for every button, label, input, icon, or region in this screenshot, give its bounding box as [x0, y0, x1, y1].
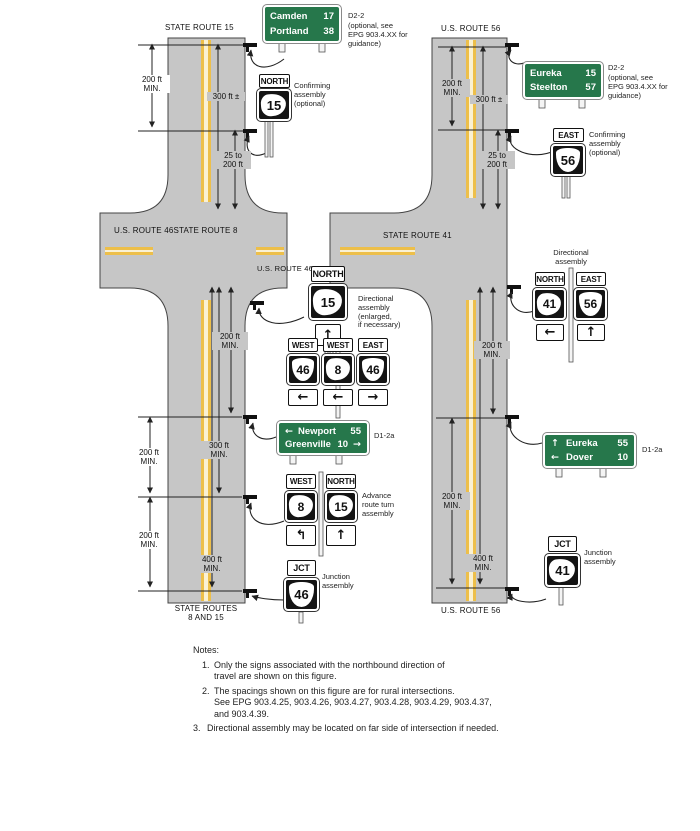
dim-left-300plus: 300 ft ±: [207, 92, 245, 101]
arrow-plaque-left-trio-1: ←: [288, 389, 318, 406]
route-shield-us-56-confirming: 56: [551, 144, 585, 176]
arrow-plaque-up-right-directional: ↑: [577, 324, 605, 341]
banner-east-trio-3: EAST: [358, 338, 388, 352]
route-shield-mo-15-confirming: 15: [257, 89, 291, 121]
notes-title: Notes:: [193, 645, 523, 657]
banner-jct-right: JCT: [548, 536, 577, 552]
route-shield-us-56-directional: 56: [574, 288, 607, 320]
route-shield-mo-8-advance: 8: [285, 491, 317, 522]
dim-left-below-400: 400 ftMIN.: [194, 555, 230, 573]
dim-right-top-200: 200 ftMIN.: [434, 79, 470, 97]
d12a-tag-right: D1-2a: [642, 446, 662, 455]
d22-note-right: (optional, see EPG 903.4.XX for guidance…: [608, 74, 668, 100]
dim-left-below-200: 200 ftMIN.: [212, 332, 248, 350]
note-2: 2. The spacings shown on this figure are…: [193, 686, 523, 721]
d22-note-left: (optional, see EPG 903.4.XX for guidance…: [348, 22, 408, 48]
dim-left-below-300: 300 ftMIN.: [201, 441, 237, 459]
road-label-sr41: STATE ROUTE 41: [383, 231, 452, 240]
junction-label-right: Junction assembly: [584, 549, 616, 567]
road-label-us56-top: U.S. ROUTE 56: [441, 24, 501, 33]
road-label-sr15: STATE ROUTE 15: [165, 23, 234, 32]
dim-left-25to200: 25 to200 ft: [215, 151, 251, 169]
banner-north-left-confirming: NORTH: [259, 74, 290, 88]
route-shield-mo-41-junction: 41: [545, 554, 580, 587]
banner-jct-left: JCT: [287, 560, 316, 576]
route-shield-mo-8-trio-2: 8: [322, 354, 354, 385]
road-label-us46-sr8: U.S. ROUTE 46STATE ROUTE 8: [114, 226, 238, 235]
banner-west-advance: WEST: [286, 474, 316, 489]
d22-tag-left: D2-2: [348, 12, 364, 21]
banner-east-right-directional: EAST: [576, 272, 606, 286]
note-1: 1. Only the signs associated with the no…: [193, 660, 523, 683]
confirming-label-right: Confirming assembly (optional): [589, 131, 625, 157]
banner-north-left-directional: NORTH: [311, 266, 345, 282]
guide-sign-eureka-dover: ↑ Eureka 55 ← Dover 10: [543, 433, 636, 468]
note-3: 3. Directional assembly may be located o…: [193, 723, 523, 735]
route-shield-us-46-junction: 46: [284, 578, 319, 611]
banner-west-trio-1: WEST: [288, 338, 318, 352]
guide-sign-newport-greenville: ← Newport 55 Greenville 10 →: [277, 421, 369, 455]
arrow-plaque-up-advance: ↑: [326, 525, 356, 546]
route-shield-mo-15-advance: 15: [325, 491, 357, 522]
banner-east-right-confirming: EAST: [553, 128, 584, 142]
d12a-tag-left: D1-2a: [374, 432, 394, 441]
dim-right-below-400: 400 ftMIN.: [465, 554, 501, 572]
route-shield-mo-15-directional: 15: [309, 284, 347, 320]
arrow-plaque-left-trio-2: ←: [323, 389, 353, 406]
banner-north-advance: NORTH: [326, 474, 356, 489]
guide-sign-camden-portland: Camden17 Portland38: [263, 5, 341, 43]
road-label-sr8-15: STATE ROUTES 8 AND 15: [163, 604, 249, 622]
arrow-plaque-left-right-directional: ←: [536, 324, 564, 341]
road-label-us46: U.S. ROUTE 46: [257, 264, 313, 273]
dim-left-outer-200a: 200 ftMIN.: [131, 448, 167, 466]
directional-label-right: Directional assembly: [536, 249, 606, 267]
route-shield-us-46-trio-3: 46: [357, 354, 389, 385]
dim-right-below-200a: 200 ftMIN.: [474, 341, 510, 359]
dim-left-top-200: 200 ftMIN.: [134, 75, 170, 93]
d22-tag-right: D2-2: [608, 64, 624, 73]
intersection-signing-figure: STATE ROUTE 15 U.S. ROUTE 56 U.S. ROUTE …: [0, 0, 700, 831]
dim-left-outer-200b: 200 ftMIN.: [131, 531, 167, 549]
advance-label: Advance route turn assembly: [362, 492, 394, 518]
notes-block: Notes: 1. Only the signs associated with…: [193, 645, 523, 735]
confirming-label-left: Confirming assembly (optional): [294, 82, 330, 108]
dim-right-300plus: 300 ft ±: [470, 95, 508, 104]
route-shield-us-46-trio-1: 46: [287, 354, 319, 385]
banner-north-right-directional: NORTH: [535, 272, 565, 286]
guide-sign-eureka-steelton: Eureka15 Steelton57: [523, 62, 603, 99]
route-shield-mo-41-directional: 41: [533, 288, 566, 320]
directional-enlarged-label: Directional assembly (enlarged, if neces…: [358, 295, 401, 330]
dim-right-25to200: 25 to200 ft: [479, 151, 515, 169]
arrow-plaque-turn-left-advance: ↰: [286, 525, 316, 546]
dim-right-below-200b: 200 ftMIN.: [434, 492, 470, 510]
junction-label-left: Junction assembly: [322, 573, 354, 591]
banner-west-trio-2: WEST: [323, 338, 353, 352]
road-label-us56-bottom: U.S. ROUTE 56: [441, 606, 501, 615]
arrow-plaque-right-trio-3: →: [358, 389, 388, 406]
left-road: [100, 38, 287, 603]
